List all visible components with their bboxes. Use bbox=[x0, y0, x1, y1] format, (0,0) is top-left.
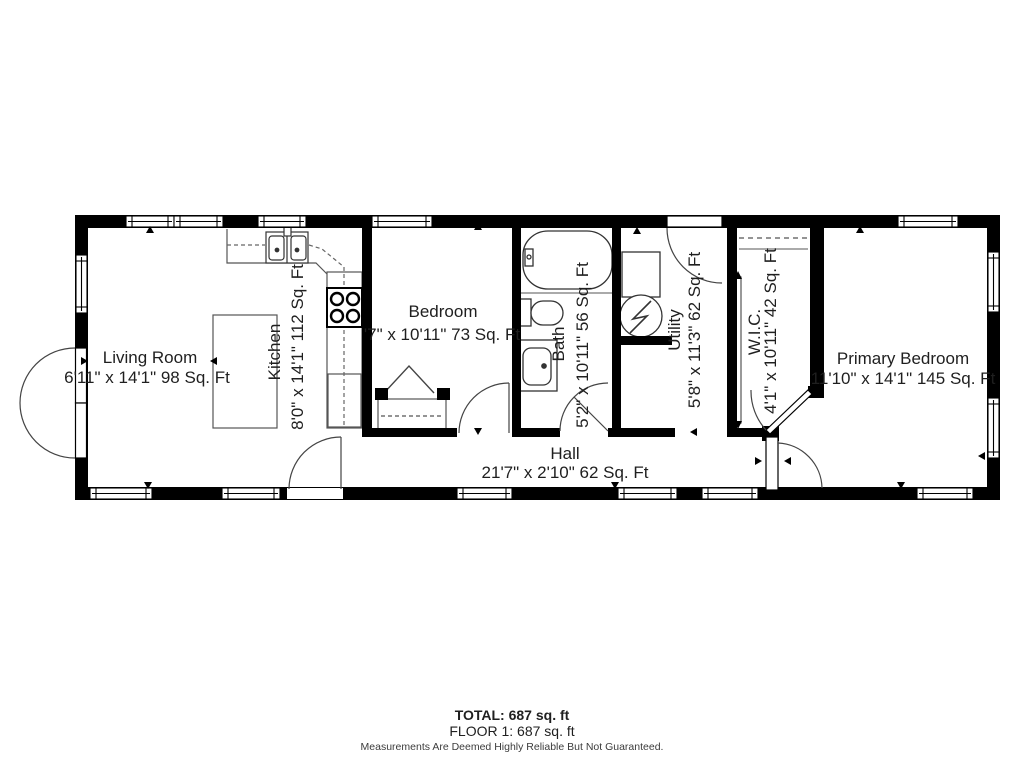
double-entry-door bbox=[20, 348, 87, 458]
front-door bbox=[287, 437, 343, 499]
marker-triangle bbox=[474, 428, 482, 435]
bath-fixtures bbox=[517, 231, 612, 391]
wall-utility-nook bbox=[612, 336, 672, 345]
closet-hanger-icon bbox=[384, 366, 434, 393]
marker-triangle bbox=[978, 452, 985, 460]
door-arc bbox=[20, 403, 75, 458]
door-arc bbox=[459, 383, 509, 433]
door-leaf bbox=[76, 403, 87, 458]
door-arc bbox=[778, 443, 822, 488]
window bbox=[917, 488, 973, 499]
marker-triangle bbox=[755, 457, 762, 465]
utility-fixtures bbox=[620, 252, 662, 337]
window bbox=[90, 488, 152, 499]
upper-cabinet-dashed-line bbox=[309, 245, 344, 267]
toilet-icon bbox=[518, 299, 563, 326]
footer: TOTAL: 687 sq. ft FLOOR 1: 687 sq. ft Me… bbox=[361, 707, 664, 753]
bedroom-door bbox=[459, 383, 509, 433]
water-heater-icon bbox=[620, 295, 662, 337]
window bbox=[222, 488, 280, 499]
wall-bath-utility bbox=[612, 228, 621, 437]
window bbox=[898, 216, 958, 227]
door-arc bbox=[289, 437, 341, 489]
room-dims-kitchen: 8'0" x 14'1" 112 Sq. Ft bbox=[288, 264, 307, 430]
marker-triangle bbox=[690, 428, 697, 436]
room-dims-primary-bedroom: 11'10" x 14'1" 145 Sq. Ft bbox=[811, 369, 996, 388]
room-label-living-room: Living Room bbox=[103, 348, 198, 367]
window bbox=[457, 488, 512, 499]
room-dims-bath: 5'2" x 10'11" 56 Sq. Ft bbox=[573, 262, 592, 428]
footer-disclaimer: Measurements Are Deemed Highly Reliable … bbox=[361, 741, 664, 753]
wall-bottom bbox=[75, 487, 1000, 500]
window bbox=[702, 488, 758, 499]
washer-icon bbox=[622, 252, 660, 297]
wall-wic-primary bbox=[810, 228, 824, 388]
room-dims-utility: 5'8" x 11'3" 62 Sq. Ft bbox=[685, 252, 704, 408]
wall-hall-2 bbox=[512, 428, 560, 437]
window bbox=[174, 216, 223, 227]
room-dims-hall: 21'7" x 2'10" 62 Sq. Ft bbox=[482, 463, 649, 482]
room-dims-bedroom: '7" x 10'11" 73 Sq. Ft bbox=[364, 325, 520, 344]
bathtub-icon bbox=[523, 231, 612, 289]
window bbox=[372, 216, 432, 227]
wall-hall-3 bbox=[608, 428, 675, 437]
room-label-hall: Hall bbox=[550, 444, 579, 463]
footer-total: TOTAL: 687 sq. ft bbox=[455, 707, 570, 723]
wall-utility-wic bbox=[727, 228, 737, 437]
room-dims-wic: 4'1" x 10'11" 42 Sq. Ft bbox=[761, 248, 780, 414]
primary-bedroom-door bbox=[766, 437, 822, 490]
window bbox=[126, 216, 174, 227]
room-dims-living-room: 6'11" x 14'1" 98 Sq. Ft bbox=[64, 368, 230, 387]
room-label-bedroom: Bedroom bbox=[409, 302, 478, 321]
door-leaf bbox=[766, 437, 778, 490]
window bbox=[258, 216, 306, 227]
door-leaf bbox=[667, 216, 722, 227]
room-label-utility: Utility bbox=[665, 309, 684, 351]
room-label-bath: Bath bbox=[549, 327, 568, 362]
wall-hall-1 bbox=[372, 428, 457, 437]
marker-triangle bbox=[784, 457, 791, 465]
room-label-kitchen: Kitchen bbox=[265, 324, 284, 381]
window bbox=[618, 488, 677, 499]
floor-plan-page: Living Room 6'11" x 14'1" 98 Sq. Ft Kitc… bbox=[0, 0, 1024, 768]
room-label-primary-bedroom: Primary Bedroom bbox=[837, 349, 969, 368]
closet-stub-left bbox=[375, 388, 388, 400]
floor-plan-svg: Living Room 6'11" x 14'1" 98 Sq. Ft Kitc… bbox=[0, 0, 1024, 768]
window bbox=[988, 252, 999, 312]
tub-faucet-knob bbox=[527, 255, 531, 259]
closet-stub-right bbox=[437, 388, 450, 400]
window bbox=[76, 255, 87, 313]
window bbox=[988, 398, 999, 458]
footer-floor: FLOOR 1: 687 sq. ft bbox=[449, 723, 574, 739]
stove-icon bbox=[327, 288, 362, 327]
marker-triangle bbox=[633, 227, 641, 234]
bedroom-closet bbox=[378, 366, 446, 432]
